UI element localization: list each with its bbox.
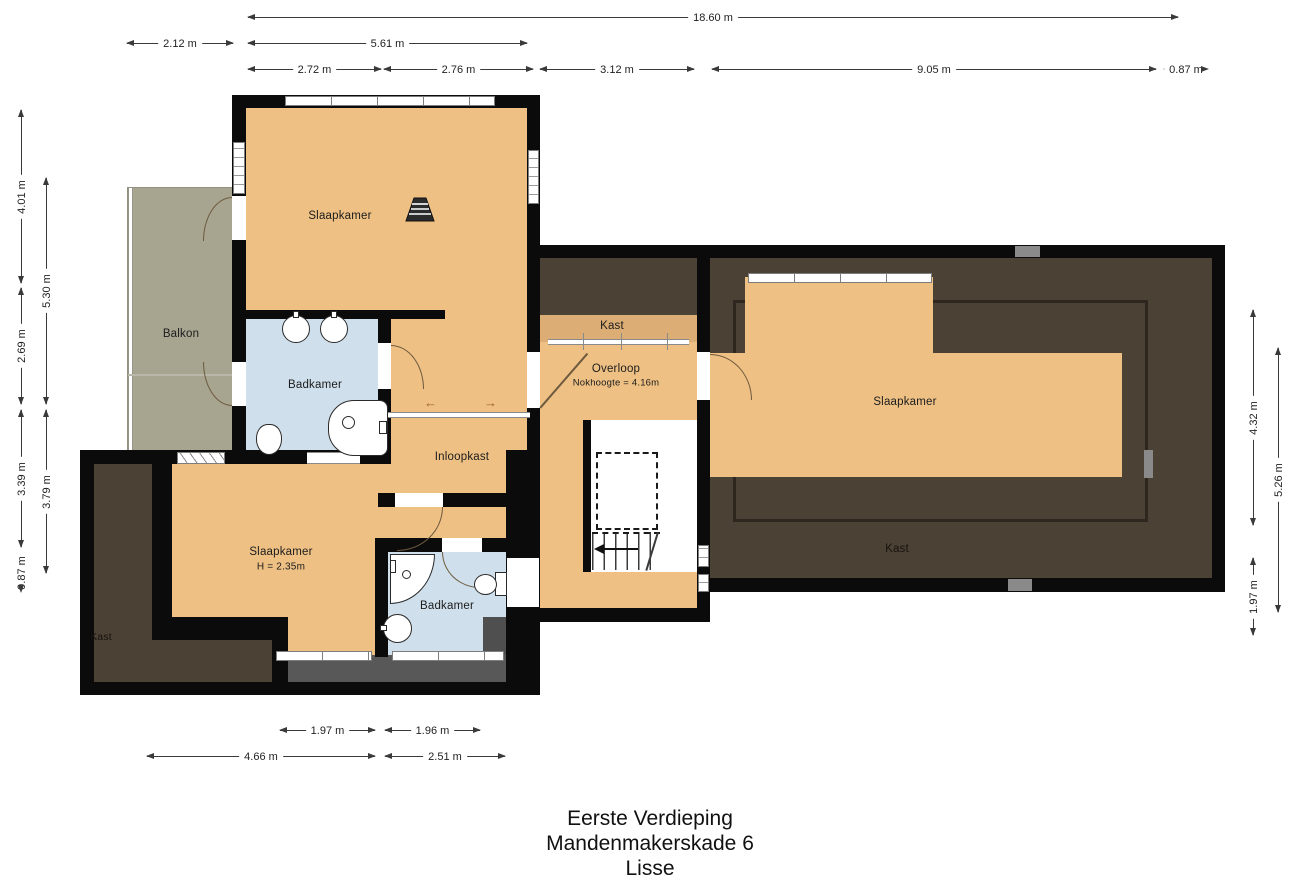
ladder-icon [404,197,436,222]
window [748,273,932,283]
wall [375,538,388,657]
dimension-left-0-87: 0.87 m [21,553,22,592]
floor-kast-sw-horizontal [94,640,272,682]
dimension-top-2-72: 2.72 m [248,69,381,70]
sink-icon [383,614,412,643]
dimension-top-2-76: 2.76 m [384,69,533,70]
floor-slaapkamer-e-main [710,353,1122,477]
closet-tick [667,333,668,350]
floorplan-canvas: ← → Slaapkamer Balkon Badkamer Inloopkas… [0,0,1300,890]
closet-tick [583,333,584,350]
sink-tap-icon [331,311,337,318]
dimension-bottom-1-96: 1.96 m [385,730,480,731]
toilet-icon [474,574,497,595]
stair-void [596,452,658,530]
wall [527,245,1225,258]
door-opening [697,352,710,400]
dimension-bottom-1-97: 1.97 m [280,730,375,731]
door-opening [232,196,246,240]
sink-icon [320,315,348,343]
room-label-inloopkast: Inloopkast [435,451,489,463]
room-label-kast-e: Kast [885,543,909,555]
shower-head-icon [390,560,396,573]
wall [272,617,288,682]
room-label-kast-center: Kast [600,320,624,332]
sliding-door [388,412,530,418]
door-opening [507,558,539,607]
stairs-direction-arrow [594,544,604,554]
dimension-top-5-61: 5.61 m [248,43,527,44]
room-label-overloop: Overloop [592,363,640,375]
room-label-slaapkamer-nw: Slaapkamer [308,210,371,222]
wall [152,617,288,640]
dimension-bottom-2-51: 2.51 m [385,756,505,757]
room-note-nokhoogte: Nokhoogte = 4.16m [573,378,660,389]
door-opening [527,352,540,408]
door-opening [442,538,482,552]
dimension-top-total: 18.60 m [248,17,1178,18]
slide-arrow-right-icon: → [484,398,497,408]
room-label-badkamer-s: Badkamer [420,600,474,612]
window [233,142,245,194]
window [177,452,225,464]
dimension-left-3-79: 3.79 m [46,410,47,573]
wall [512,608,710,622]
bathtub-drain-icon [342,416,355,429]
dimension-top-9-05: 9.05 m [712,69,1156,70]
dimension-right-5-26: 5.26 m [1278,348,1279,612]
wall [1212,245,1225,592]
window [285,96,495,106]
door-opening [395,493,443,507]
window [698,574,709,592]
room-label-kast-sw: Kast [90,631,112,643]
dimension-right-4-32: 4.32 m [1253,310,1254,525]
dimension-left-3-39: 3.39 m [21,410,22,547]
floor-slaapkamer-nw [240,100,533,315]
bathtub-tap-icon [379,421,387,434]
door-opening [378,343,391,389]
stair-arrow-shaft [602,548,638,550]
dimension-top-0-87: 0.87 m [1164,69,1208,70]
wall [246,310,390,319]
title-floor: Eerste Verdieping [0,806,1300,831]
room-label-slaapkamer-sw: Slaapkamer [249,546,312,558]
title-city: Lisse [0,856,1300,881]
window [276,651,372,661]
wall [152,464,172,617]
wall [80,450,94,695]
dimension-left-2-69: 2.69 m [21,288,22,404]
balkon-railing [128,188,133,462]
room-note-height: H = 2.35m [257,562,305,573]
room-label-badkamer-nw: Badkamer [288,379,342,391]
floor-slaapkamer-sw-c [172,550,375,617]
sink-tap-icon [380,625,387,631]
room-label-slaapkamer-e: Slaapkamer [873,396,936,408]
room-label-balkon: Balkon [163,328,199,340]
dimension-top-2-12: 2.12 m [127,43,233,44]
dimension-right-1-97: 1.97 m [1253,558,1254,635]
wall-gap [1144,450,1153,478]
toilet-icon [256,424,282,455]
window [528,150,539,204]
shower-drain-icon [402,570,411,579]
wall-gap [1008,579,1032,591]
dimension-bottom-4-66: 4.66 m [147,756,375,757]
wall [705,578,1225,592]
window [698,545,709,567]
wall [583,420,591,572]
title-block: Eerste Verdieping Mandenmakerskade 6 Lis… [0,806,1300,881]
title-address: Mandenmakerskade 6 [0,831,1300,856]
window [392,651,504,661]
wall [80,682,520,695]
floor-slaapkamer-e-upper [745,277,933,353]
door-opening [232,362,246,406]
sink-tap-icon [293,311,299,318]
sink-icon [282,315,310,343]
wall [385,310,445,319]
wall-gap [1015,246,1040,257]
floor-void-square [483,617,506,655]
closet-tick [621,333,622,350]
dimension-left-5-30: 5.30 m [46,178,47,404]
slide-arrow-left-icon: ← [424,398,437,408]
floor-kast-center-attic [540,258,697,315]
dimension-left-4-01: 4.01 m [21,110,22,283]
dimension-top-3-12: 3.12 m [540,69,694,70]
